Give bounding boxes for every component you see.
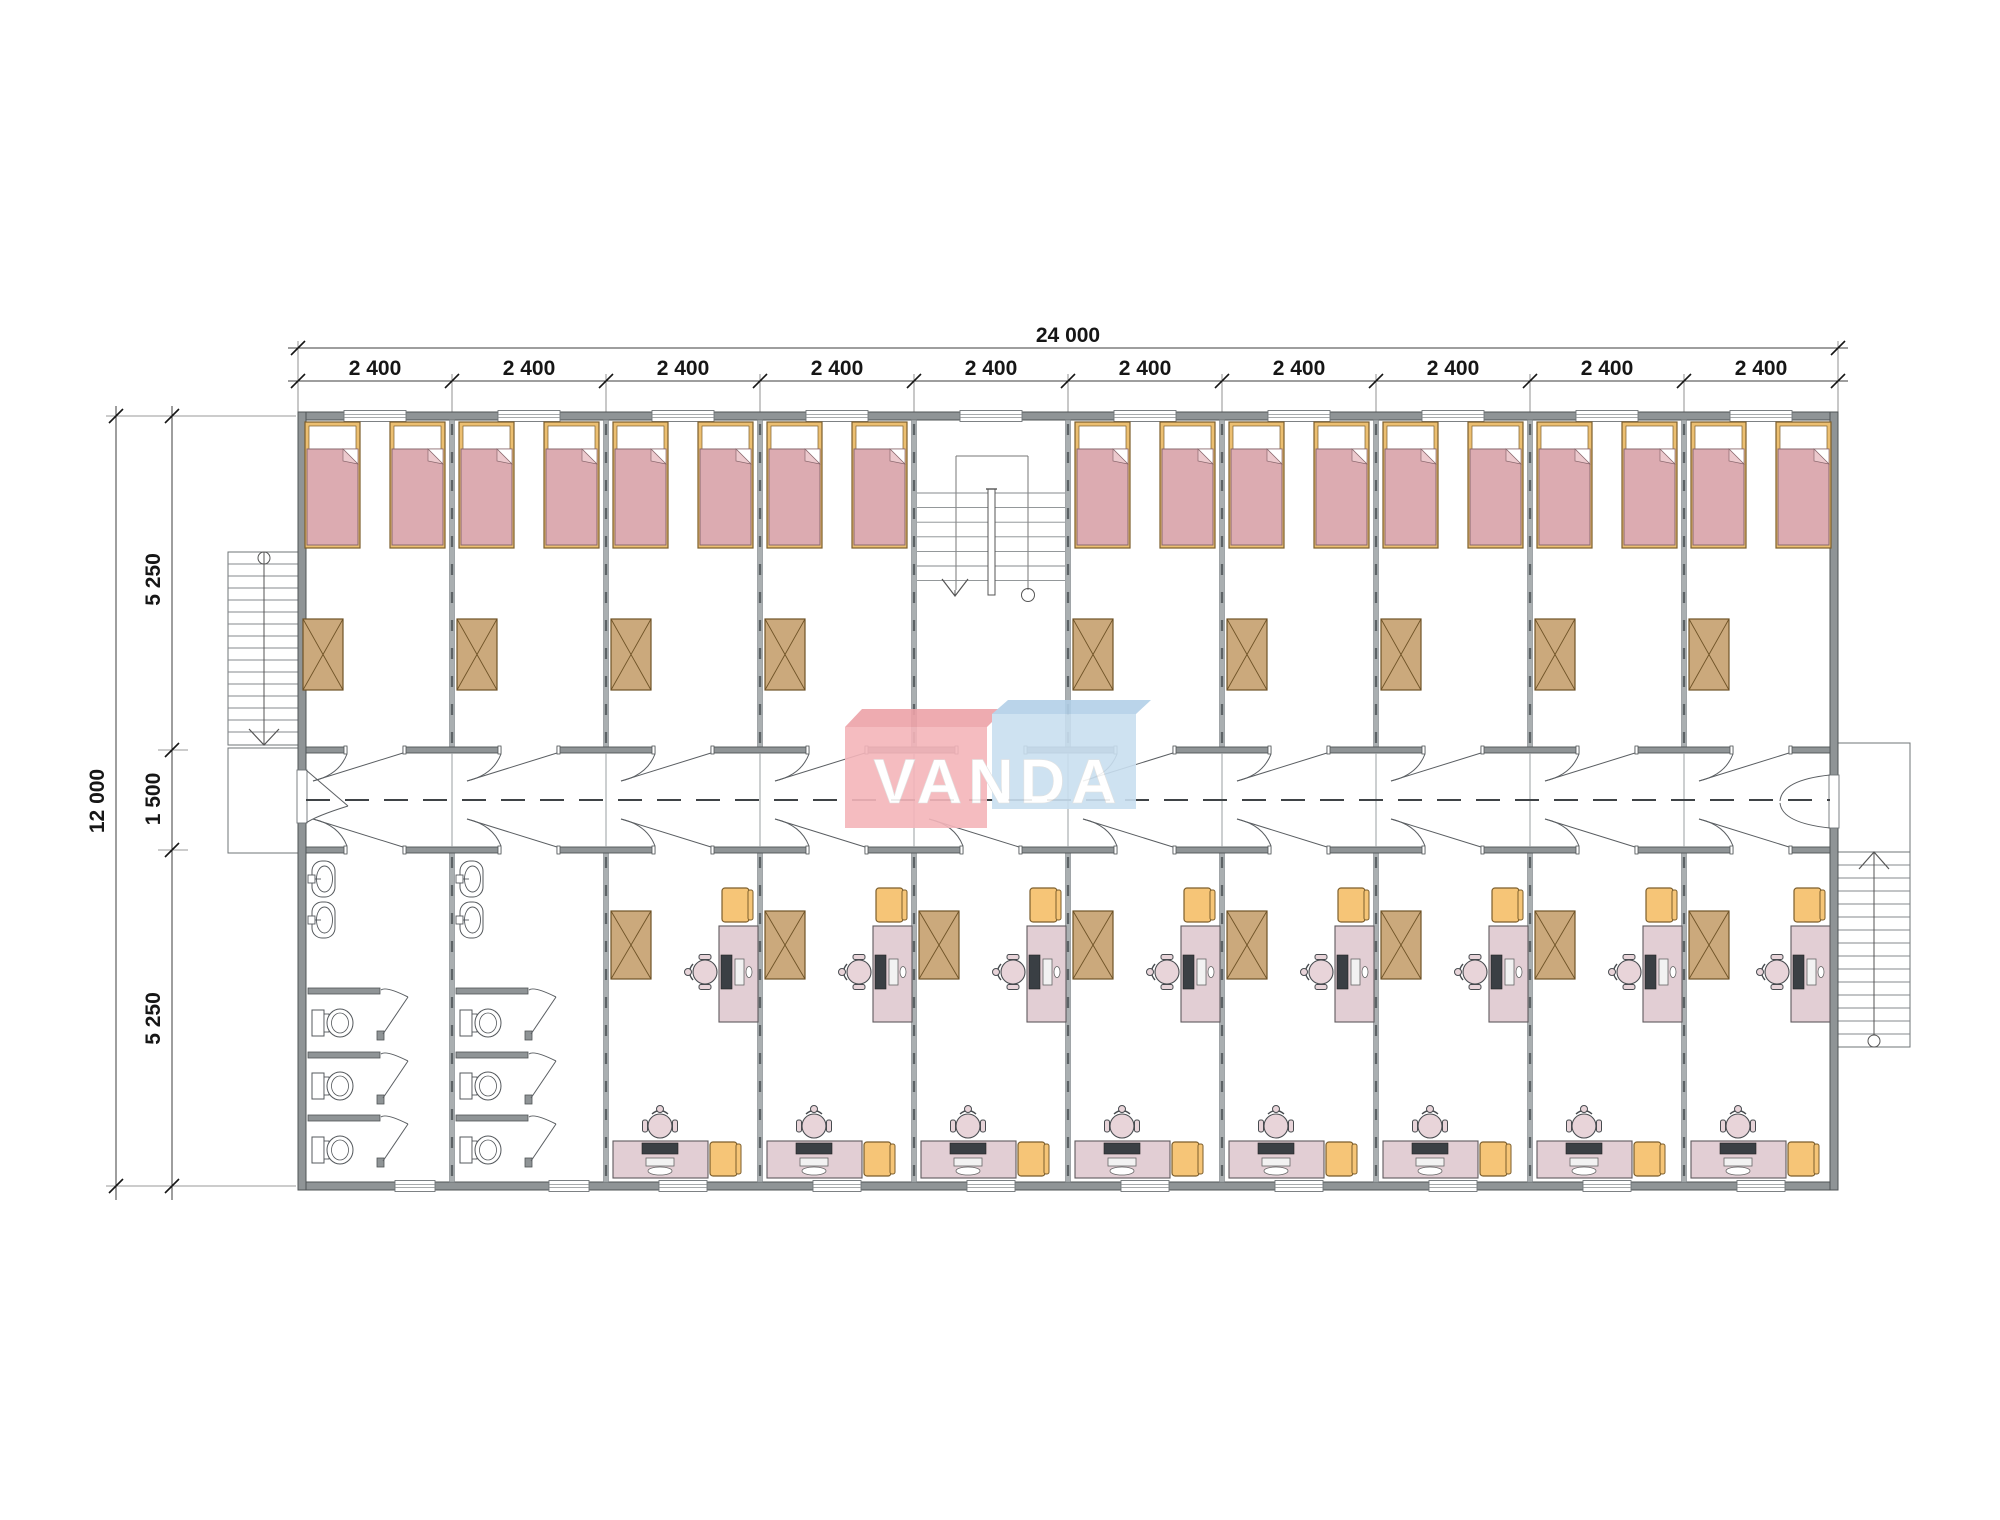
office-chair: [993, 955, 1026, 990]
wardrobe: [1381, 619, 1421, 690]
door-swing: [1780, 775, 1830, 801]
window-south: [967, 1181, 1015, 1192]
tap: [456, 875, 463, 883]
desk: [1691, 1141, 1786, 1178]
blanket: [1624, 449, 1675, 545]
corridor-wall-north: [1789, 747, 1830, 753]
mouse: [1054, 967, 1060, 978]
door-jamb: [1173, 746, 1176, 754]
window-south: [1429, 1181, 1477, 1192]
bed: [1537, 422, 1592, 548]
armchair: [710, 1142, 741, 1176]
bed: [1622, 422, 1677, 548]
toilet-stall: [456, 988, 556, 1040]
desk: [1537, 1141, 1632, 1178]
door-swing: [467, 819, 501, 846]
wardrobe: [765, 911, 805, 979]
door-jamb: [498, 846, 501, 854]
dimension-bay-width: 2 400: [965, 357, 1018, 380]
armchair: [1634, 1142, 1665, 1176]
door-jamb: [711, 746, 714, 754]
mouse: [1818, 967, 1824, 978]
wardrobe: [1227, 619, 1267, 690]
mouse: [1110, 1167, 1134, 1175]
mouse: [1362, 967, 1368, 978]
toilet-stall: [308, 1052, 408, 1104]
door-leaf: [531, 1124, 556, 1161]
tap: [456, 916, 463, 924]
door-swing: [1237, 819, 1271, 846]
door-swing: [1083, 819, 1117, 846]
toilet: [312, 1072, 353, 1100]
corridor-wall-north: [403, 747, 501, 753]
door-swing: [1391, 819, 1425, 846]
door-leaf: [383, 1061, 408, 1098]
toilet-stall: [308, 1115, 408, 1167]
door-post: [525, 1158, 532, 1167]
dimension-total-height: 12 000: [86, 769, 109, 833]
blanket: [769, 449, 820, 545]
bedroom: [1227, 422, 1369, 690]
door-jamb: [1576, 846, 1579, 854]
sink: [308, 902, 335, 938]
pillow: [617, 426, 664, 450]
door-leaf: [383, 1124, 408, 1161]
armchair: [1030, 888, 1061, 922]
door-swing: [306, 806, 348, 823]
blanket: [1162, 449, 1213, 545]
toilet: [460, 1072, 501, 1100]
wardrobe: [1689, 619, 1729, 690]
bedroom: [765, 422, 907, 690]
dimension-bay-width: 2 400: [1273, 357, 1326, 380]
logo-text: VANDA: [873, 747, 1122, 817]
partition-wall: [450, 853, 455, 1182]
door-jamb: [344, 846, 347, 854]
keyboard: [954, 1158, 982, 1166]
office-room: [1381, 888, 1528, 1178]
blanket: [1077, 449, 1128, 545]
dimension-bay-width: 2 400: [1427, 357, 1480, 380]
opening-west-exit: [297, 770, 307, 823]
logo-pink-block-top: [845, 709, 1005, 727]
office-room: [1073, 888, 1220, 1178]
window-north: [1576, 411, 1638, 422]
door-swing: [529, 989, 556, 997]
door-swing: [381, 1116, 408, 1124]
window-north: [344, 411, 406, 422]
armchair: [1794, 888, 1825, 922]
pillow: [856, 426, 903, 450]
desk: [1229, 1141, 1324, 1178]
mouse: [1208, 967, 1214, 978]
office-room: [611, 888, 758, 1178]
window-north: [1422, 411, 1484, 422]
office-room: [919, 888, 1066, 1178]
office-chair: [1413, 1106, 1448, 1139]
bedroom: [611, 422, 753, 690]
corridor-wall-south: [1173, 847, 1271, 853]
wardrobe: [303, 619, 343, 690]
window-south: [549, 1181, 589, 1192]
blanket: [546, 449, 597, 545]
keyboard: [1043, 959, 1052, 985]
door-jamb: [960, 846, 963, 854]
door-swing: [381, 1053, 408, 1061]
cistern: [460, 1073, 472, 1099]
dimension-bay-width: 2 400: [503, 357, 556, 380]
desk: [1489, 926, 1528, 1022]
bedroom: [1073, 422, 1215, 690]
floor-plan-canvas: 24 0002 4002 4002 4002 4002 4002 4002 40…: [0, 0, 2000, 1520]
door-swing: [775, 754, 809, 781]
bedroom: [1381, 422, 1523, 690]
keyboard: [735, 959, 744, 985]
pillow: [771, 426, 818, 450]
partition-wall: [450, 420, 455, 747]
left-exterior-stair: [228, 552, 300, 745]
wardrobe: [457, 619, 497, 690]
bed: [1160, 422, 1215, 548]
stall-partition: [308, 1115, 380, 1121]
wardrobe: [1073, 911, 1113, 979]
door-jamb: [1268, 746, 1271, 754]
pillow: [1780, 426, 1827, 450]
wardrobe: [1381, 911, 1421, 979]
bed: [1776, 422, 1831, 548]
door-swing: [621, 819, 655, 846]
toilet: [312, 1009, 353, 1037]
mouse: [648, 1167, 672, 1175]
bed: [1314, 422, 1369, 548]
door-jamb: [1422, 846, 1425, 854]
mouse: [746, 967, 752, 978]
bed: [1691, 422, 1746, 548]
door-leaf: [383, 997, 408, 1034]
desk: [1643, 926, 1682, 1022]
blanket: [1231, 449, 1282, 545]
door-jamb: [1576, 746, 1579, 754]
dimension-bay-width: 2 400: [1735, 357, 1788, 380]
toilet: [460, 1136, 501, 1164]
stall-partition: [456, 1115, 528, 1121]
door-jamb: [498, 746, 501, 754]
pillow: [394, 426, 441, 450]
desk: [719, 926, 758, 1022]
window-north: [1268, 411, 1330, 422]
mouse: [802, 1167, 826, 1175]
dimension-bay-width: 2 400: [349, 357, 402, 380]
corridor-wall-south: [1635, 847, 1733, 853]
desk: [921, 1141, 1016, 1178]
blanket: [1693, 449, 1744, 545]
office-chair: [1567, 1106, 1602, 1139]
bed: [305, 422, 360, 548]
mouse: [1516, 967, 1522, 978]
keyboard: [1108, 1158, 1136, 1166]
tap: [308, 916, 315, 924]
floor-plan-drawing: 24 0002 4002 4002 4002 4002 4002 4002 40…: [0, 0, 2000, 1520]
computer-monitor: [796, 1143, 832, 1154]
door-swing: [1545, 819, 1579, 846]
door-jamb: [1730, 846, 1733, 854]
computer-monitor: [1491, 955, 1502, 989]
keyboard: [1570, 1158, 1598, 1166]
door-jamb: [1635, 746, 1638, 754]
blanket: [1316, 449, 1367, 545]
blanket: [700, 449, 751, 545]
dimension-corridor-width: 1 500: [142, 773, 165, 826]
door-jamb: [1019, 846, 1022, 854]
wardrobe: [919, 911, 959, 979]
corridor-wall-north: [1327, 747, 1425, 753]
office-chair: [839, 955, 872, 990]
armchair: [1338, 888, 1369, 922]
corridor-wall-south: [557, 847, 655, 853]
office-room: [1227, 888, 1374, 1178]
office-chair: [1301, 955, 1334, 990]
door-jamb: [557, 746, 560, 754]
partition-wall: [1220, 420, 1225, 747]
door-jamb: [711, 846, 714, 854]
armchair: [864, 1142, 895, 1176]
stall-partition: [456, 1052, 528, 1058]
computer-monitor: [1337, 955, 1348, 989]
door-jamb: [1327, 746, 1330, 754]
blanket: [1539, 449, 1590, 545]
window-north: [1730, 411, 1792, 422]
dimension-bay-width: 2 400: [657, 357, 710, 380]
cistern: [460, 1010, 472, 1036]
door-post: [377, 1031, 384, 1040]
left-landing: [228, 748, 300, 853]
bed: [852, 422, 907, 548]
bedroom: [1535, 422, 1677, 690]
toilet-stall: [308, 988, 408, 1040]
partition-wall: [1066, 420, 1071, 747]
office-chair: [1105, 1106, 1140, 1139]
corridor-wall-north: [306, 747, 347, 753]
wardrobe: [765, 619, 805, 690]
blanket: [1470, 449, 1521, 545]
armchair: [876, 888, 907, 922]
computer-monitor: [1258, 1143, 1294, 1154]
blanket: [1778, 449, 1829, 545]
sink: [456, 902, 483, 938]
central-stair: [917, 456, 1065, 602]
pillow: [702, 426, 749, 450]
window-south: [1275, 1181, 1323, 1192]
pillow: [548, 426, 595, 450]
door-jamb: [865, 846, 868, 854]
door-jamb: [1268, 846, 1271, 854]
corridor-wall-north: [1173, 747, 1271, 753]
bed: [544, 422, 599, 548]
door-jamb: [403, 746, 406, 754]
dimension-bay-width: 2 400: [1119, 357, 1172, 380]
blanket: [615, 449, 666, 545]
pillow: [463, 426, 510, 450]
computer-monitor: [1793, 955, 1804, 989]
wardrobe: [1073, 619, 1113, 690]
door-swing: [1699, 819, 1733, 846]
corridor-wall-north: [1481, 747, 1579, 753]
door-jamb: [652, 846, 655, 854]
pillow: [1079, 426, 1126, 450]
bedroom: [303, 422, 445, 690]
keyboard: [646, 1158, 674, 1166]
partition-wall: [912, 420, 917, 747]
door-jamb: [1481, 846, 1484, 854]
right-exterior-stair: [1838, 852, 1910, 1047]
mouse: [956, 1167, 980, 1175]
corridor-wall-south: [1789, 847, 1830, 853]
desk: [1791, 926, 1830, 1022]
window-south: [1583, 1181, 1631, 1192]
window-south: [395, 1181, 435, 1192]
corridor-wall-south: [1481, 847, 1579, 853]
door-post: [525, 1095, 532, 1104]
door-jamb: [557, 846, 560, 854]
keyboard: [1262, 1158, 1290, 1166]
door-swing: [313, 754, 347, 781]
pillow: [1472, 426, 1519, 450]
corridor-wall-south: [1327, 847, 1425, 853]
door-jamb: [1730, 746, 1733, 754]
computer-monitor: [642, 1143, 678, 1154]
dimension-upper-depth: 5 250: [142, 553, 165, 606]
toilet: [460, 1009, 501, 1037]
pillow: [1626, 426, 1673, 450]
door-swing: [1391, 754, 1425, 781]
partition-wall: [604, 420, 609, 747]
keyboard: [1197, 959, 1206, 985]
office-chair: [797, 1106, 832, 1139]
computer-monitor: [875, 955, 886, 989]
door-swing: [529, 1116, 556, 1124]
corridor-wall-south: [306, 847, 347, 853]
blanket: [392, 449, 443, 545]
pillow: [1233, 426, 1280, 450]
dimension-total-width: 24 000: [1036, 324, 1100, 347]
armchair: [1480, 1142, 1511, 1176]
armchair: [722, 888, 753, 922]
door-swing: [1699, 754, 1733, 781]
door-leaf: [531, 997, 556, 1034]
bedroom: [1689, 422, 1831, 690]
desk: [613, 1141, 708, 1178]
window-south: [813, 1181, 861, 1192]
desk: [1181, 926, 1220, 1022]
stall-partition: [308, 1052, 380, 1058]
armchair: [1184, 888, 1215, 922]
bedroom: [457, 422, 599, 690]
door-jamb: [1789, 746, 1792, 754]
computer-monitor: [1183, 955, 1194, 989]
pillow: [309, 426, 356, 450]
keyboard: [1416, 1158, 1444, 1166]
sink: [456, 861, 483, 897]
stair-rail: [988, 489, 995, 595]
desk: [1335, 926, 1374, 1022]
computer-monitor: [1645, 955, 1656, 989]
corridor-wall-south: [711, 847, 809, 853]
bed: [1229, 422, 1284, 548]
door-jamb: [806, 846, 809, 854]
door-post: [377, 1158, 384, 1167]
office-chair: [951, 1106, 986, 1139]
blanket: [1385, 449, 1436, 545]
mouse: [1726, 1167, 1750, 1175]
tap: [308, 875, 315, 883]
vanda-logo: VANDA: [845, 700, 1151, 828]
bed: [1383, 422, 1438, 548]
door-jamb: [1481, 746, 1484, 754]
desk: [873, 926, 912, 1022]
cistern: [312, 1010, 324, 1036]
desk: [1383, 1141, 1478, 1178]
keyboard: [1724, 1158, 1752, 1166]
stall-partition: [308, 988, 380, 994]
pillow: [1541, 426, 1588, 450]
door-swing: [381, 989, 408, 997]
keyboard: [1807, 959, 1816, 985]
office-room: [765, 888, 912, 1178]
office-chair: [1721, 1106, 1756, 1139]
computer-monitor: [1029, 955, 1040, 989]
door-jamb: [1327, 846, 1330, 854]
window-south: [659, 1181, 707, 1192]
opening-east-exit: [1829, 775, 1839, 828]
armchair: [1326, 1142, 1357, 1176]
door-swing: [529, 1053, 556, 1061]
wardrobe: [1535, 619, 1575, 690]
computer-monitor: [721, 955, 732, 989]
door-jamb: [806, 746, 809, 754]
door-swing: [1237, 754, 1271, 781]
mouse: [1264, 1167, 1288, 1175]
keyboard: [1659, 959, 1668, 985]
wardrobe: [1227, 911, 1267, 979]
window-north: [498, 411, 560, 422]
door-leaf: [531, 1061, 556, 1098]
window-north: [806, 411, 868, 422]
office-chair: [643, 1106, 678, 1139]
door-swing: [621, 754, 655, 781]
partition-wall: [1682, 420, 1687, 747]
partition-wall: [604, 853, 609, 1182]
office-chair: [1259, 1106, 1294, 1139]
cistern: [460, 1137, 472, 1163]
door-jamb: [1173, 846, 1176, 854]
cistern: [312, 1073, 324, 1099]
right-landing: [1838, 743, 1910, 852]
armchair: [1788, 1142, 1819, 1176]
bed: [698, 422, 753, 548]
door-jamb: [403, 846, 406, 854]
stall-partition: [456, 988, 528, 994]
blanket: [461, 449, 512, 545]
door-jamb: [1789, 846, 1792, 854]
blanket: [307, 449, 358, 545]
office-room: [1535, 888, 1682, 1178]
keyboard: [800, 1158, 828, 1166]
partition-wall: [1528, 420, 1533, 747]
desk: [1075, 1141, 1170, 1178]
door-post: [377, 1095, 384, 1104]
wardrobe: [611, 619, 651, 690]
door-jamb: [1635, 846, 1638, 854]
